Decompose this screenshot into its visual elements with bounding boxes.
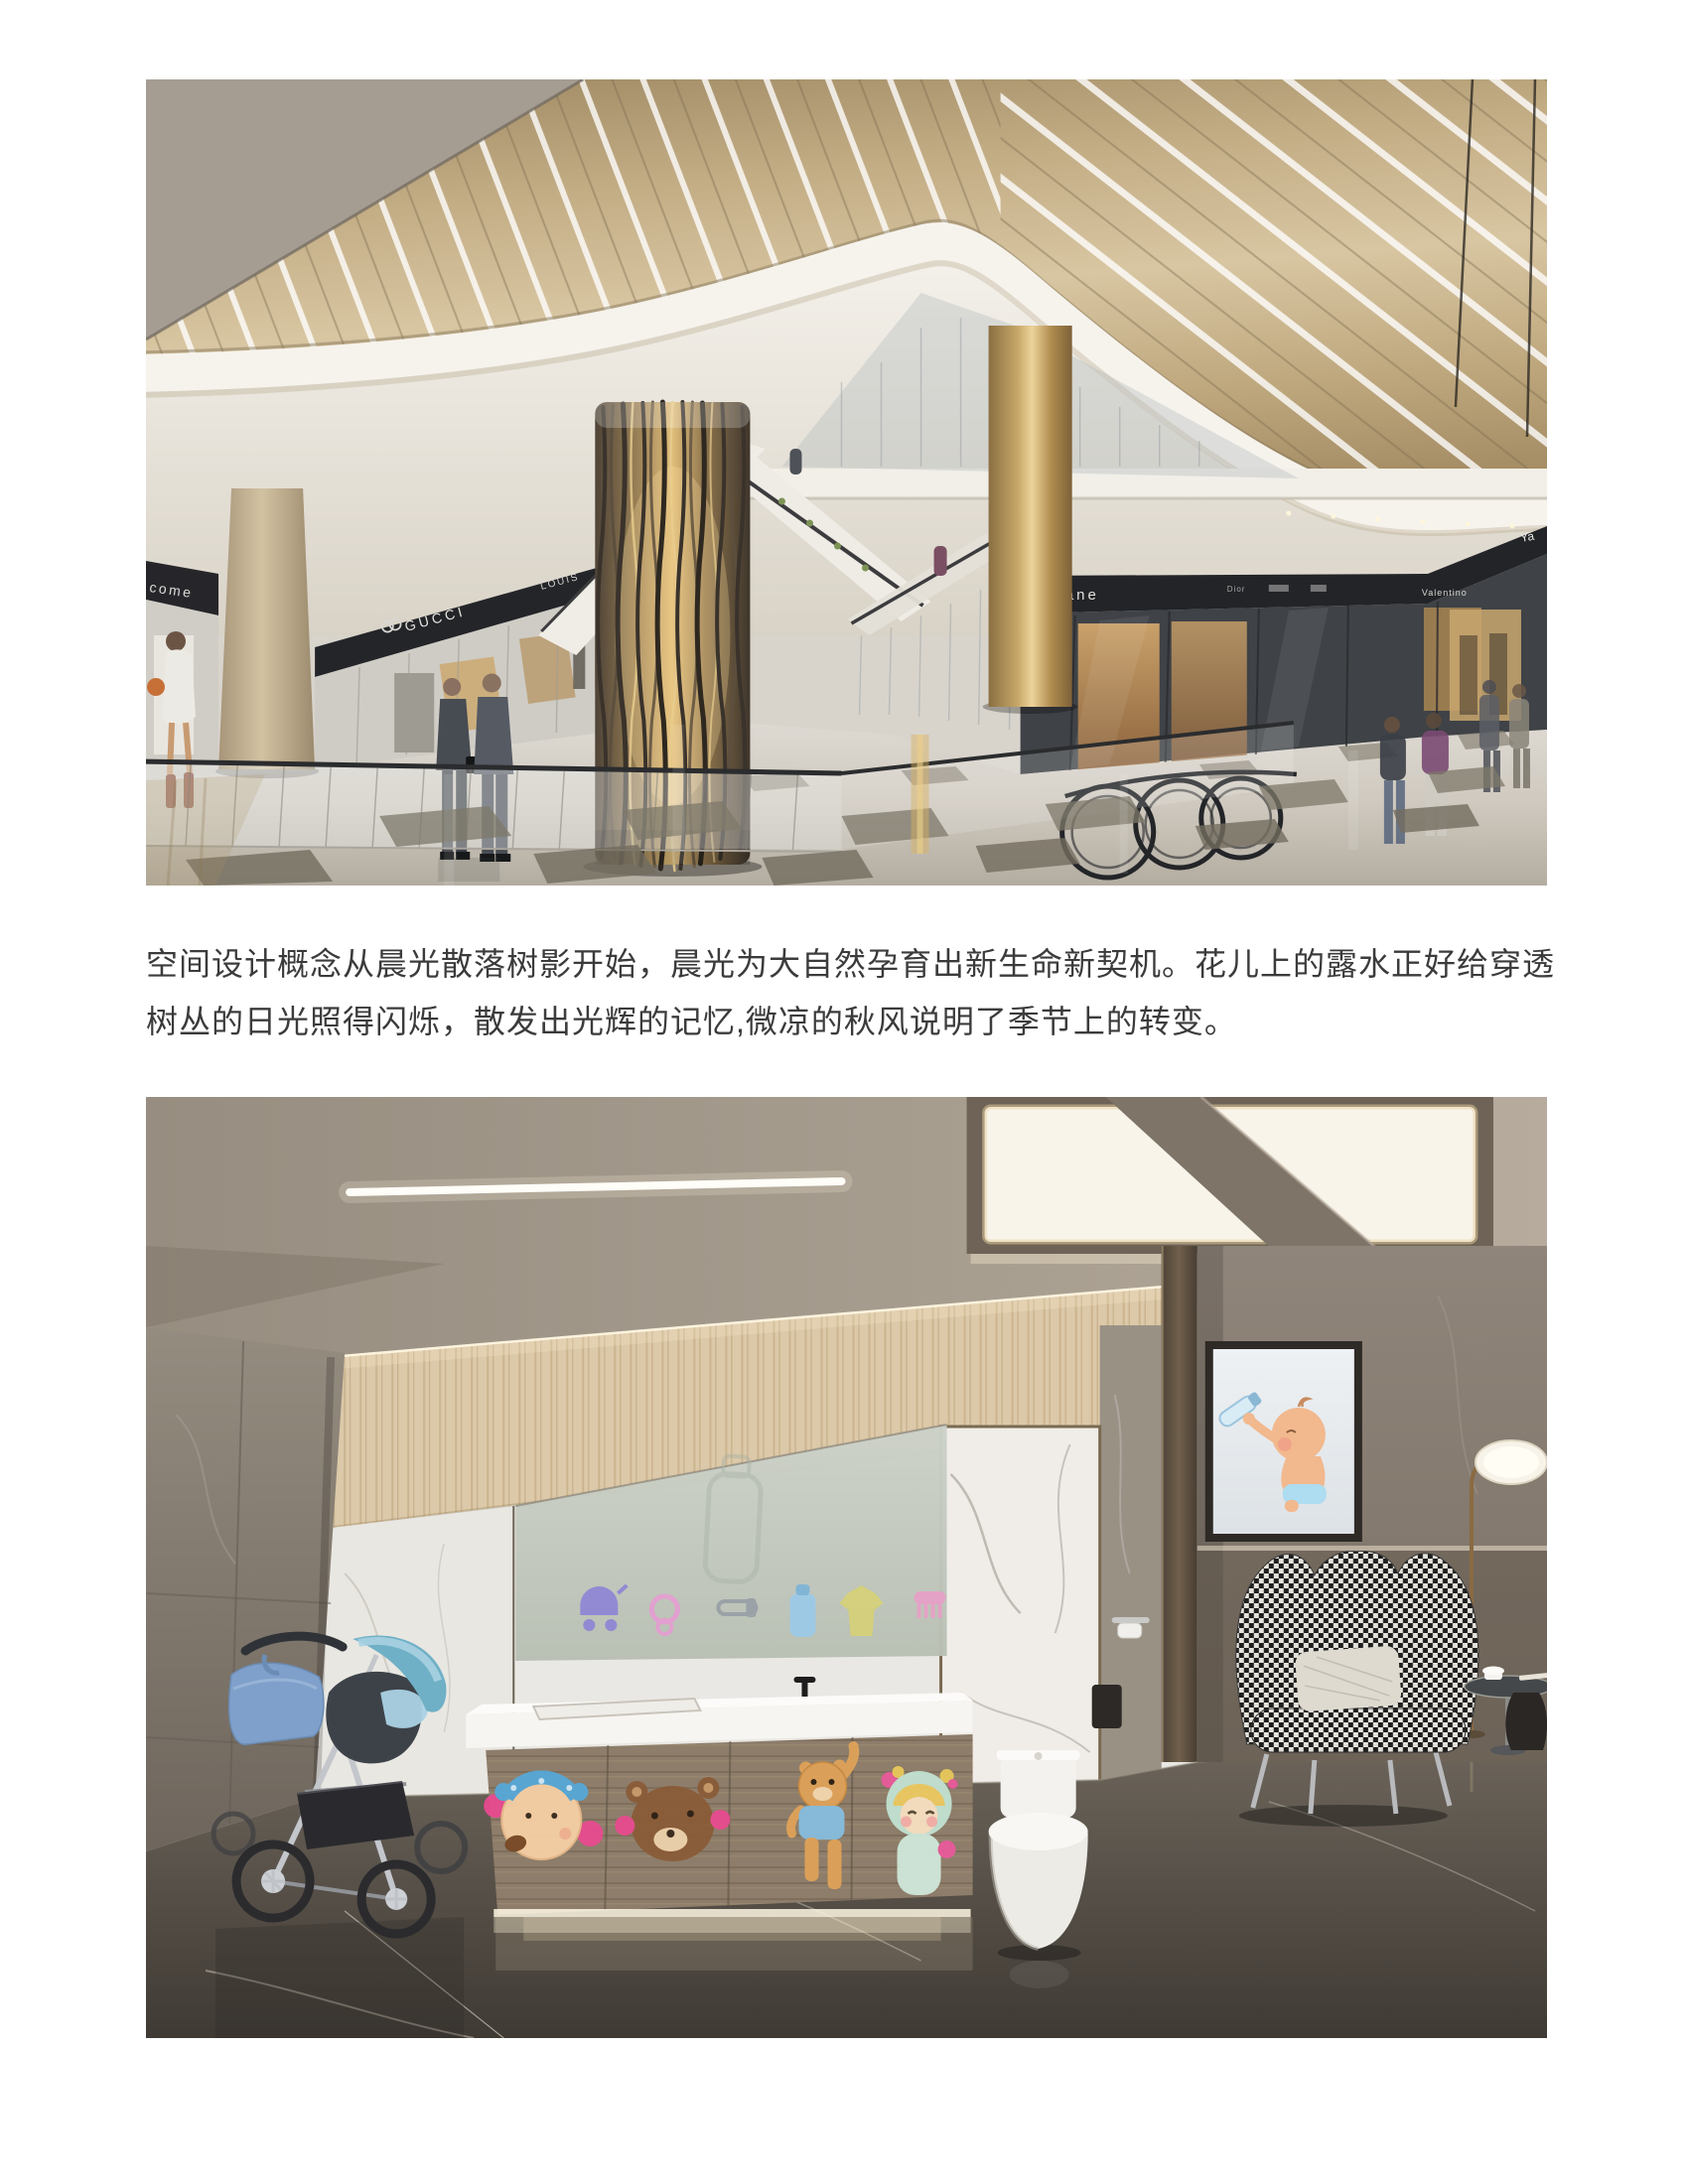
gold-column [983, 326, 1078, 714]
article-page: come GUCCI LOUIS [0, 0, 1688, 2184]
escalator-rider [934, 546, 947, 576]
valentino-sign: Valentino [1422, 588, 1468, 598]
mall-atrium-rendering: come GUCCI LOUIS [146, 79, 1547, 886]
escalator-rider [789, 449, 801, 475]
ya-sign: Ya [1519, 529, 1535, 545]
mall-atrium-scene: come GUCCI LOUIS [146, 79, 1547, 886]
paragraph-line-2: 树丛的日光照得闪烁，散发出光辉的记忆,微凉的秋风说明了季节上的转变。 [146, 993, 1556, 1050]
wall-divider-panel [1162, 1246, 1197, 1762]
throw-pillow [1295, 1645, 1402, 1711]
beige-column [215, 488, 319, 778]
lounge-nook [1197, 1246, 1547, 1827]
dior-sign: Dior [1227, 585, 1246, 594]
dark-vase [1505, 1693, 1547, 1750]
left-wall-marble [146, 1327, 345, 1851]
baby-care-room-scene [146, 1097, 1547, 2038]
vanity-unit [466, 1677, 972, 1933]
trash-bin [1092, 1685, 1122, 1728]
shopping-bag [147, 678, 165, 696]
body-paragraph: 空间设计概念从晨光散落树影开始，晨光为大自然孕育出新生命新契机。花儿上的露水正好… [146, 935, 1556, 1050]
baby-art-frame [1205, 1341, 1362, 1542]
paragraph-line-1: 空间设计概念从晨光散落树影开始，晨光为大自然孕育出新生命新契机。花儿上的露水正好… [146, 935, 1556, 993]
baby-care-room-rendering [146, 1097, 1547, 2038]
